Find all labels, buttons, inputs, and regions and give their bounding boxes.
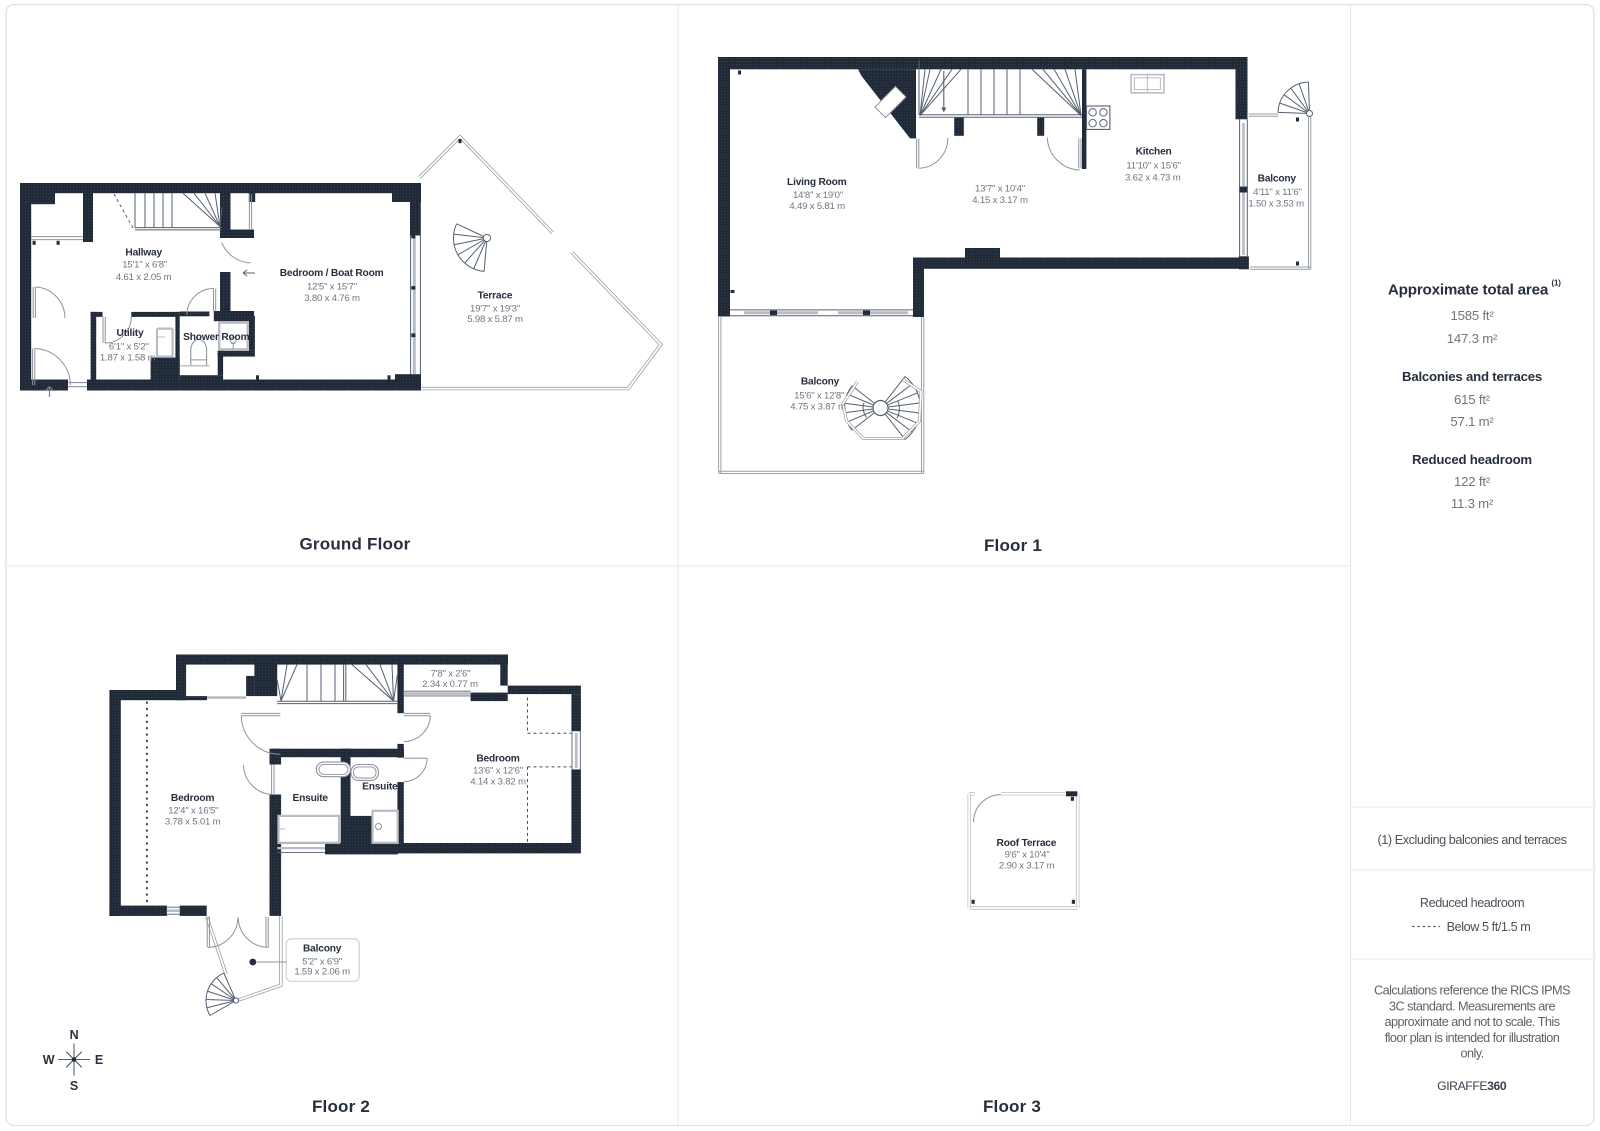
- svg-text:13'6" x 12'6": 13'6" x 12'6": [473, 766, 523, 777]
- svg-text:147.3 m²: 147.3 m²: [1447, 331, 1498, 346]
- svg-text:Floor 2: Floor 2: [312, 1097, 370, 1116]
- svg-text:1585 ft²: 1585 ft²: [1450, 308, 1494, 323]
- svg-text:Balconies and terraces: Balconies and terraces: [1402, 369, 1542, 384]
- svg-text:Reduced headroom: Reduced headroom: [1412, 452, 1532, 467]
- svg-text:1.59 x 2.06 m: 1.59 x 2.06 m: [294, 967, 350, 978]
- svg-text:GIRAFFE360: GIRAFFE360: [1437, 1079, 1507, 1093]
- svg-text:19'7" x 19'3": 19'7" x 19'3": [470, 304, 520, 315]
- svg-text:4.75 x 3.87 m: 4.75 x 3.87 m: [790, 402, 846, 413]
- svg-text:floor plan is intended for ill: floor plan is intended for illustration: [1385, 1031, 1560, 1045]
- svg-text:7'8" x 2'6": 7'8" x 2'6": [431, 669, 471, 680]
- svg-text:Ensuite: Ensuite: [292, 793, 328, 804]
- svg-text:Floor 3: Floor 3: [983, 1097, 1041, 1116]
- svg-text:4.15 x 3.17 m: 4.15 x 3.17 m: [972, 195, 1028, 206]
- svg-text:9'6" x 10'4": 9'6" x 10'4": [1005, 849, 1050, 860]
- svg-text:Balcony: Balcony: [1258, 174, 1297, 185]
- svg-text:Hallway: Hallway: [125, 248, 162, 259]
- svg-text:3.80 x 4.76 m: 3.80 x 4.76 m: [304, 293, 360, 304]
- svg-text:W: W: [43, 1053, 55, 1067]
- svg-text:Bedroom: Bedroom: [476, 753, 519, 764]
- svg-text:Shower Room: Shower Room: [183, 332, 249, 343]
- svg-text:Kitchen: Kitchen: [1136, 147, 1172, 158]
- svg-text:Balcony: Balcony: [303, 944, 342, 955]
- svg-text:Bedroom / Boat Room: Bedroom / Boat Room: [280, 268, 384, 279]
- svg-text:approximate and not to scale.: approximate and not to scale. This: [1384, 1015, 1559, 1029]
- svg-text:Floor 1: Floor 1: [984, 536, 1042, 555]
- svg-text:12'4" x 16'5": 12'4" x 16'5": [168, 806, 218, 817]
- svg-text:Terrace: Terrace: [478, 291, 513, 302]
- svg-text:3C standard. Measurements are: 3C standard. Measurements are: [1389, 999, 1555, 1013]
- svg-text:15'1" x 6'8": 15'1" x 6'8": [122, 260, 167, 271]
- svg-text:57.1 m²: 57.1 m²: [1450, 414, 1494, 429]
- svg-text:2.90 x 3.17 m: 2.90 x 3.17 m: [999, 860, 1055, 871]
- svg-text:6'1" x 5'2": 6'1" x 5'2": [109, 342, 149, 353]
- svg-text:4.61 x 2.05 m: 4.61 x 2.05 m: [116, 272, 172, 283]
- svg-text:14'8" x 19'0": 14'8" x 19'0": [793, 190, 843, 201]
- svg-text:Ground Floor: Ground Floor: [300, 535, 411, 554]
- svg-text:only.: only.: [1460, 1047, 1483, 1061]
- svg-text:12'5" x 15'7": 12'5" x 15'7": [307, 282, 357, 293]
- svg-text:4'11" x 11'6": 4'11" x 11'6": [1253, 187, 1302, 198]
- svg-text:Below 5 ft/1.5 m: Below 5 ft/1.5 m: [1447, 920, 1531, 934]
- svg-text:13'7" x 10'4": 13'7" x 10'4": [975, 184, 1025, 195]
- svg-text:11.3 m²: 11.3 m²: [1451, 496, 1494, 511]
- svg-text:1.50 x 3.53 m: 1.50 x 3.53 m: [1248, 199, 1304, 210]
- svg-text:Living Room: Living Room: [787, 177, 847, 188]
- svg-text:S: S: [70, 1079, 78, 1093]
- svg-text:Calculations reference the RIC: Calculations reference the RICS IPMS: [1374, 984, 1570, 998]
- svg-text:4.49 x 5.81 m: 4.49 x 5.81 m: [789, 201, 845, 212]
- svg-text:615 ft²: 615 ft²: [1454, 392, 1491, 407]
- svg-text:Ensuite: Ensuite: [362, 782, 398, 793]
- svg-text:4.14 x 3.82 m: 4.14 x 3.82 m: [470, 777, 526, 788]
- svg-text:122 ft²: 122 ft²: [1454, 474, 1491, 489]
- svg-text:N: N: [70, 1028, 79, 1042]
- svg-text:3.78 x 5.01 m: 3.78 x 5.01 m: [165, 817, 221, 828]
- svg-text:(1): (1): [1552, 279, 1562, 288]
- svg-text:2.34 x 0.77 m: 2.34 x 0.77 m: [422, 679, 478, 690]
- svg-text:5.98 x 5.87 m: 5.98 x 5.87 m: [467, 314, 523, 325]
- svg-text:Approximate total area: Approximate total area: [1388, 282, 1549, 299]
- svg-text:11'10" x 15'6": 11'10" x 15'6": [1126, 161, 1180, 172]
- svg-text:(1) Excluding balconies and te: (1) Excluding balconies and terraces: [1377, 833, 1566, 847]
- svg-text:1.87 x 1.58 m: 1.87 x 1.58 m: [100, 352, 156, 363]
- svg-text:Bedroom: Bedroom: [171, 793, 214, 804]
- svg-text:Balcony: Balcony: [801, 377, 840, 388]
- svg-text:3.62 x 4.73 m: 3.62 x 4.73 m: [1125, 173, 1181, 184]
- svg-text:15'6" x 12'8": 15'6" x 12'8": [794, 390, 844, 401]
- svg-text:Roof Terrace: Roof Terrace: [997, 838, 1057, 849]
- svg-text:Reduced headroom: Reduced headroom: [1420, 896, 1524, 910]
- svg-text:E: E: [95, 1053, 103, 1067]
- svg-text:Utility: Utility: [117, 328, 144, 339]
